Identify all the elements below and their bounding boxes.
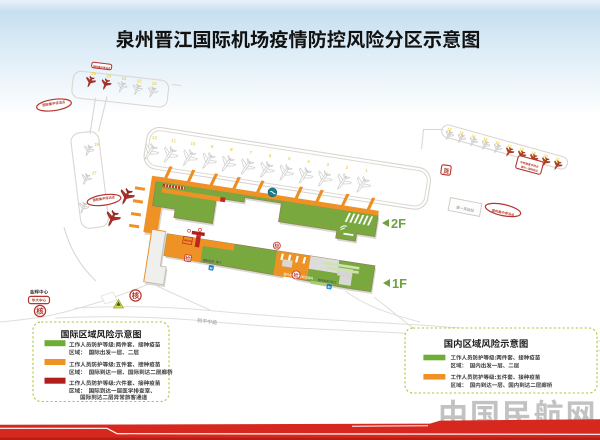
svg-text:1F: 1F	[392, 276, 407, 291]
svg-text:M: M	[327, 285, 331, 289]
svg-text:23: 23	[122, 76, 127, 81]
svg-text:21: 21	[152, 81, 157, 86]
svg-text:M: M	[209, 266, 213, 270]
svg-text:24: 24	[106, 74, 111, 79]
svg-text:2F: 2F	[391, 216, 406, 231]
svg-text:22: 22	[137, 79, 142, 84]
svg-text:25: 25	[91, 71, 96, 76]
